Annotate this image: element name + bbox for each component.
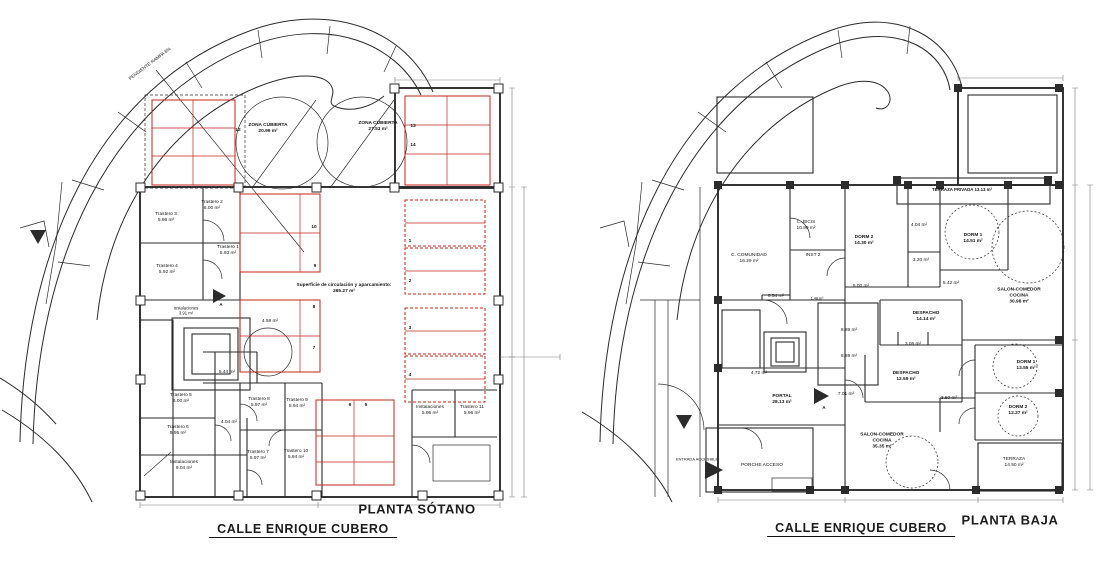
section-arrow-icon: [814, 388, 829, 404]
plan-label: Instalaciones5.96 m²: [416, 405, 444, 417]
elevator: [172, 318, 292, 390]
plan-label: INST 2: [806, 253, 821, 259]
plan-label: 7: [313, 346, 316, 352]
plan-label: SALON-COMEDORCOCINA35.35 m²: [860, 433, 903, 452]
plan-label: 3.50 m²: [941, 396, 957, 402]
plan-label: Trastero 56.00 m²: [170, 393, 192, 405]
vent-hatch: [433, 445, 490, 481]
zona-cubierta-circle: [236, 97, 328, 189]
street-label: CALLE ENRIQUE CUBERO: [209, 522, 397, 538]
plan-label: 4.04 m²: [221, 420, 237, 426]
plan-label: Trastero 45.92 m²: [156, 264, 178, 276]
plan-label: 4.58 m²: [262, 319, 278, 325]
baja-plan: [582, 22, 1093, 503]
elevator: [764, 332, 806, 372]
plan-label: 14: [410, 143, 415, 149]
zona-cubierta-circle: [317, 97, 407, 187]
plan-label: ZONA CUBIERTA20.99 m²: [248, 123, 287, 135]
plan-label: A: [822, 405, 825, 411]
plan-label: 5.44 m²: [219, 370, 235, 376]
plan-label: Trastero 26.00 m²: [201, 200, 223, 212]
plan-label: 5: [365, 403, 368, 409]
patio-hatch: [818, 303, 878, 385]
floor-plan-sheet: PENDIENTE RAMPA 8%ZONA CUBIERTA20.99 m²Z…: [0, 0, 1116, 573]
plan-label: 3.05 m²: [905, 342, 921, 348]
plan-label: DORM 114.51 m²: [963, 233, 982, 245]
ramp-curves: [0, 19, 433, 502]
plan-label: Superficie de circulación y aparcamiento…: [297, 283, 392, 295]
plan-label: 13: [410, 124, 415, 130]
plan-label: Trastero 105.94 m²: [284, 449, 308, 461]
plan-label: Trastero 65.95 m²: [167, 425, 189, 437]
plan-label: 1.48 m²: [811, 297, 824, 302]
plan-label: Trastero 95.94 m²: [286, 398, 308, 410]
street-label: CALLE ENRIQUE CUBERO: [767, 521, 955, 537]
plan-label: Instalaciones3.91 m²: [174, 306, 198, 317]
plan-label: TERRAZA14.50 m²: [1003, 457, 1025, 469]
plan-label: DESPACHO12.59 m²: [893, 371, 920, 383]
sotano-title: PLANTA SÓTANO: [358, 502, 475, 517]
plan-label: Trastero 35.96 m²: [155, 212, 177, 224]
entrance-arrow-icon: [705, 461, 723, 479]
plan-label: 8: [313, 305, 316, 311]
plan-label: 5.42 m²: [943, 281, 959, 287]
stairs-hatch: [722, 310, 760, 368]
plan-label: PORCHE ACCESO: [741, 463, 783, 469]
plan-label: 12: [235, 128, 240, 134]
plan-label: 6: [349, 403, 352, 409]
plan-label: Trastero 85.97 m²: [248, 397, 270, 409]
plan-label: 0.54 m²: [768, 294, 784, 300]
sotano-plan: [0, 19, 560, 508]
interior-walls: [140, 187, 497, 497]
plan-label: 7.01 m²: [838, 392, 854, 398]
pergola-hatch: [717, 97, 813, 173]
stairs-hatch: [140, 320, 173, 497]
plan-label: 4.04 m²: [911, 223, 927, 229]
section-arrow-icon: [213, 289, 226, 303]
site-marker-icon: [676, 415, 692, 429]
plan-label: 3: [409, 326, 412, 332]
plan-label: DESPACHO14.14 m²: [913, 311, 940, 323]
plan-label: Trastero 75.97 m²: [247, 450, 269, 462]
plan-label: DORM 214.30 m²: [854, 235, 873, 247]
site-marker-icon: [30, 230, 46, 244]
plan-label: 9: [314, 264, 317, 270]
plan-label: C. BICIS10.99 m²: [797, 220, 816, 232]
plan-label: 8.89 m²: [841, 328, 857, 334]
plan-label: Trastero 15.93 m²: [217, 245, 239, 257]
plan-label: 5.00 m²: [853, 284, 869, 290]
porche-hatch: [706, 428, 813, 492]
plan-label: Trastero 115.96 m²: [460, 405, 484, 417]
plan-label: ENTRADA ACCESIBLE: [676, 456, 718, 461]
plan-label: DORM 113.55 m²: [1016, 360, 1035, 372]
plan-label: 4: [409, 373, 412, 379]
plan-label: 10: [311, 225, 316, 231]
plan-label: Instalaciones9.04 m²: [170, 460, 198, 472]
plan-label: 8.89 m²: [841, 354, 857, 360]
plan-label: A: [219, 302, 222, 308]
plan-label: C. COMUNIDAD16.29 m²: [731, 253, 767, 265]
plan-label: 4.72 m²: [751, 371, 767, 377]
pergola-hatch: [968, 95, 1057, 173]
plan-label: 1: [409, 239, 412, 245]
plan-label: 2: [409, 279, 412, 285]
plan-label: 3.20 m²: [913, 258, 929, 264]
ramp-curves: [582, 22, 962, 502]
plan-label: TERRAZA PRIVADA 13.13 m²: [932, 187, 992, 193]
plan-label: SALON-COMEDORCOCINA30.98 m²: [997, 288, 1040, 307]
plan-label: ZONA CUBIERTA27.53 m²: [358, 121, 397, 133]
plan-label: PORTAL28.13 m²: [772, 394, 791, 406]
baja-title: PLANTA BAJA: [962, 513, 1059, 528]
plan-label: DORM 212.27 m²: [1008, 405, 1027, 417]
